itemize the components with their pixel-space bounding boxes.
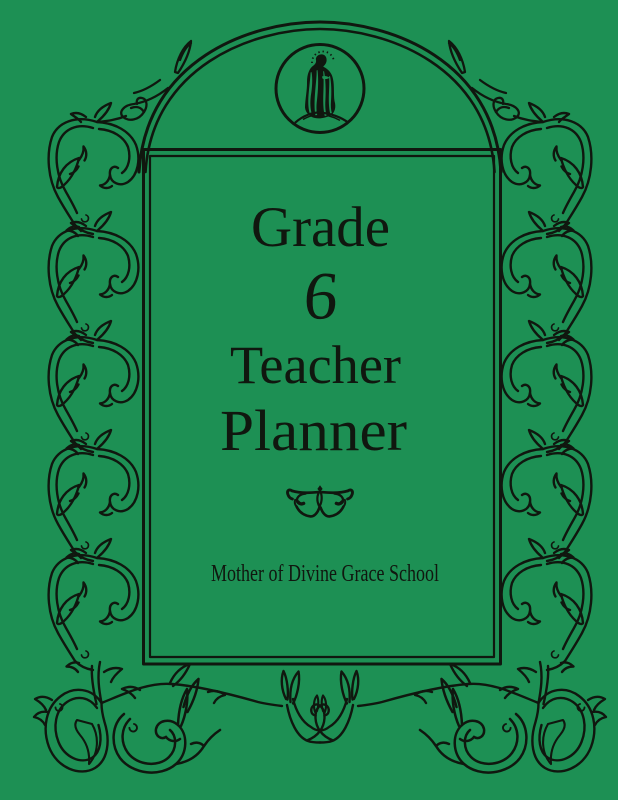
svg-text:6: 6 [301,258,342,334]
svg-text:Grade: Grade [251,196,390,259]
svg-text:Planner: Planner [220,398,407,463]
svg-text:Teacher: Teacher [230,335,401,395]
svg-text:Mother of Divine Grace School: Mother of Divine Grace School [211,561,439,587]
